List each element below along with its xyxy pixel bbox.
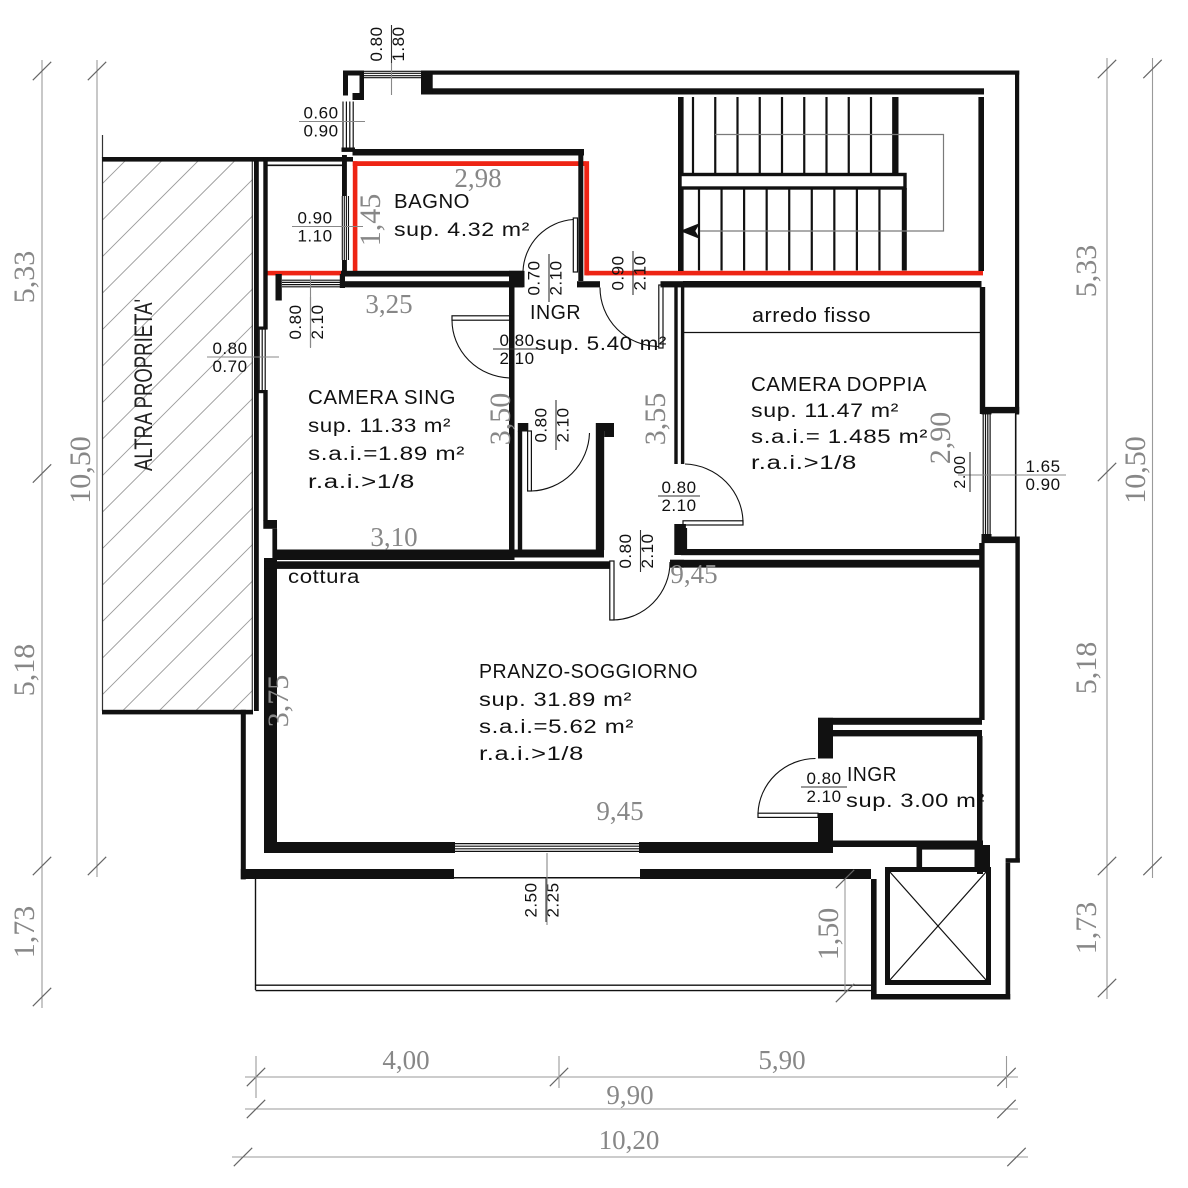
svg-text:2.10: 2.10	[638, 533, 657, 568]
svg-text:3,50: 3,50	[484, 393, 517, 446]
svg-text:3,25: 3,25	[365, 289, 412, 319]
svg-text:0.80: 0.80	[367, 26, 386, 61]
svg-text:cottura: cottura	[288, 567, 360, 588]
svg-text:1,50: 1,50	[812, 908, 845, 961]
svg-text:ALTRA PROPRIETA': ALTRA PROPRIETA'	[130, 299, 158, 471]
svg-text:1,45: 1,45	[354, 194, 387, 247]
svg-text:9,45: 9,45	[670, 559, 717, 589]
svg-text:0.90: 0.90	[609, 255, 628, 290]
svg-text:1.10: 1.10	[297, 227, 332, 246]
svg-text:0.90: 0.90	[1025, 475, 1060, 494]
svg-text:PRANZO-SOGGIORNO: PRANZO-SOGGIORNO	[479, 661, 698, 683]
svg-text:r.a.i.>1/8: r.a.i.>1/8	[751, 453, 857, 474]
svg-text:1,73: 1,73	[8, 906, 41, 959]
svg-text:9,90: 9,90	[606, 1080, 653, 1110]
svg-text:5,18: 5,18	[1070, 642, 1103, 695]
svg-text:2.10: 2.10	[554, 407, 573, 442]
svg-text:0.80: 0.80	[806, 769, 841, 788]
svg-text:4,00: 4,00	[382, 1045, 429, 1075]
svg-text:0.80: 0.80	[499, 331, 534, 350]
svg-text:2.10: 2.10	[806, 787, 841, 806]
svg-text:CAMERA DOPPIA: CAMERA DOPPIA	[751, 374, 927, 396]
svg-text:2.50: 2.50	[522, 882, 541, 917]
svg-text:sup. 11.33 m²: sup. 11.33 m²	[308, 416, 451, 437]
svg-text:5,33: 5,33	[1070, 245, 1103, 298]
svg-text:0.90: 0.90	[303, 122, 338, 141]
svg-text:2,98: 2,98	[454, 163, 501, 193]
svg-text:9,45: 9,45	[596, 796, 643, 826]
svg-text:r.a.i.>1/8: r.a.i.>1/8	[308, 472, 415, 493]
svg-text:0.80: 0.80	[532, 407, 551, 442]
svg-text:10,50: 10,50	[1119, 436, 1152, 504]
svg-text:sup. 3.00 m²: sup. 3.00 m²	[846, 791, 985, 812]
svg-text:arredo fisso: arredo fisso	[752, 305, 871, 327]
svg-text:0.80: 0.80	[616, 533, 635, 568]
svg-text:INGR: INGR	[530, 302, 581, 324]
svg-text:5,33: 5,33	[8, 251, 41, 304]
svg-text:s.a.i.=5.62 m²: s.a.i.=5.62 m²	[479, 717, 634, 738]
svg-text:3,75: 3,75	[262, 675, 295, 728]
svg-text:1.65: 1.65	[1025, 457, 1060, 476]
svg-text:BAGNO: BAGNO	[394, 191, 470, 213]
svg-text:2.25: 2.25	[544, 882, 563, 917]
svg-text:2,90: 2,90	[924, 412, 957, 465]
svg-text:5,90: 5,90	[758, 1045, 805, 1075]
svg-text:r.a.i.>1/8: r.a.i.>1/8	[479, 744, 584, 765]
svg-text:2.10: 2.10	[631, 255, 650, 290]
svg-text:1.80: 1.80	[389, 26, 408, 61]
svg-text:s.a.i.=1.89 m²: s.a.i.=1.89 m²	[308, 444, 465, 465]
svg-text:2.10: 2.10	[499, 349, 534, 368]
svg-text:sup. 5.40 m²: sup. 5.40 m²	[535, 334, 667, 355]
svg-text:CAMERA SING: CAMERA SING	[308, 387, 456, 409]
svg-text:s.a.i.= 1.485 m²: s.a.i.= 1.485 m²	[751, 427, 928, 448]
svg-text:5,18: 5,18	[8, 644, 41, 697]
svg-text:0.70: 0.70	[525, 260, 544, 295]
svg-text:3,10: 3,10	[370, 522, 417, 552]
svg-text:0.90: 0.90	[297, 209, 332, 228]
svg-text:2.10: 2.10	[661, 496, 696, 515]
svg-text:10,50: 10,50	[64, 436, 97, 504]
svg-text:0.70: 0.70	[212, 357, 247, 376]
svg-text:10,20: 10,20	[599, 1125, 660, 1155]
svg-text:sup. 11.47 m²: sup. 11.47 m²	[751, 401, 899, 422]
svg-text:1,73: 1,73	[1070, 902, 1103, 955]
svg-text:3,55: 3,55	[639, 393, 672, 446]
svg-text:0.80: 0.80	[286, 304, 305, 339]
svg-text:0.80: 0.80	[661, 478, 696, 497]
svg-text:2.10: 2.10	[547, 260, 566, 295]
svg-text:INGR: INGR	[847, 764, 897, 786]
svg-text:sup. 4.32 m²: sup. 4.32 m²	[394, 220, 530, 241]
svg-text:0.80: 0.80	[212, 339, 247, 358]
svg-text:0.60: 0.60	[303, 104, 338, 123]
svg-text:sup. 31.89 m²: sup. 31.89 m²	[479, 690, 632, 711]
